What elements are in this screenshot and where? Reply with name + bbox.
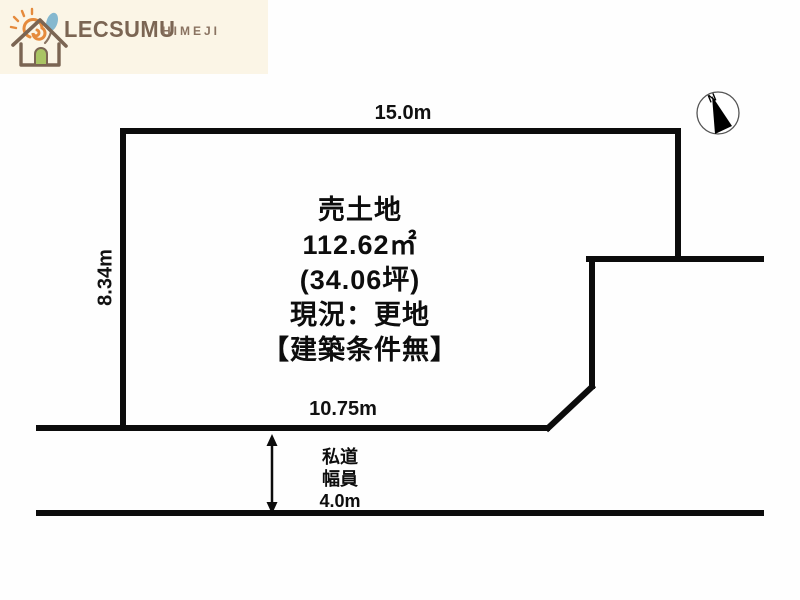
road-line-width: 幅員 bbox=[280, 468, 400, 490]
parcel-line-area-tsubo: (34.06坪) bbox=[160, 263, 560, 298]
parcel-label: 売土地 112.62㎡ (34.06坪) 現況：更地 【建築条件無】 bbox=[160, 193, 560, 368]
parcel-line-area-sqm: 112.62㎡ bbox=[160, 228, 560, 263]
road-line-type: 私道 bbox=[280, 446, 400, 468]
road-line-value: 4.0m bbox=[280, 490, 400, 512]
house-logo-icon bbox=[6, 3, 68, 69]
brand-location: HIMEJI bbox=[162, 24, 220, 38]
parcel-line-type: 売土地 bbox=[160, 193, 560, 228]
road-width-label: 私道 幅員 4.0m bbox=[280, 446, 400, 512]
dimension-label-left: 8.34m bbox=[95, 218, 118, 338]
parcel-line-status: 現況：更地 bbox=[160, 298, 560, 333]
compass-icon: N bbox=[694, 89, 744, 139]
road-width-arrow-icon bbox=[267, 434, 278, 514]
dimension-label-top: 15.0m bbox=[343, 102, 463, 125]
dimension-label-bottom: 10.75m bbox=[283, 398, 403, 421]
logo: LECSUMU HIMEJI bbox=[0, 0, 268, 74]
land-plot-diagram: LECSUMU HIMEJI N 15.0m 8.34m 10.75m 売土地 … bbox=[0, 0, 800, 600]
parcel-line-condition: 【建築条件無】 bbox=[160, 333, 560, 368]
brand-name: LECSUMU bbox=[64, 16, 175, 43]
plot-corner-diagonal bbox=[546, 385, 594, 430]
